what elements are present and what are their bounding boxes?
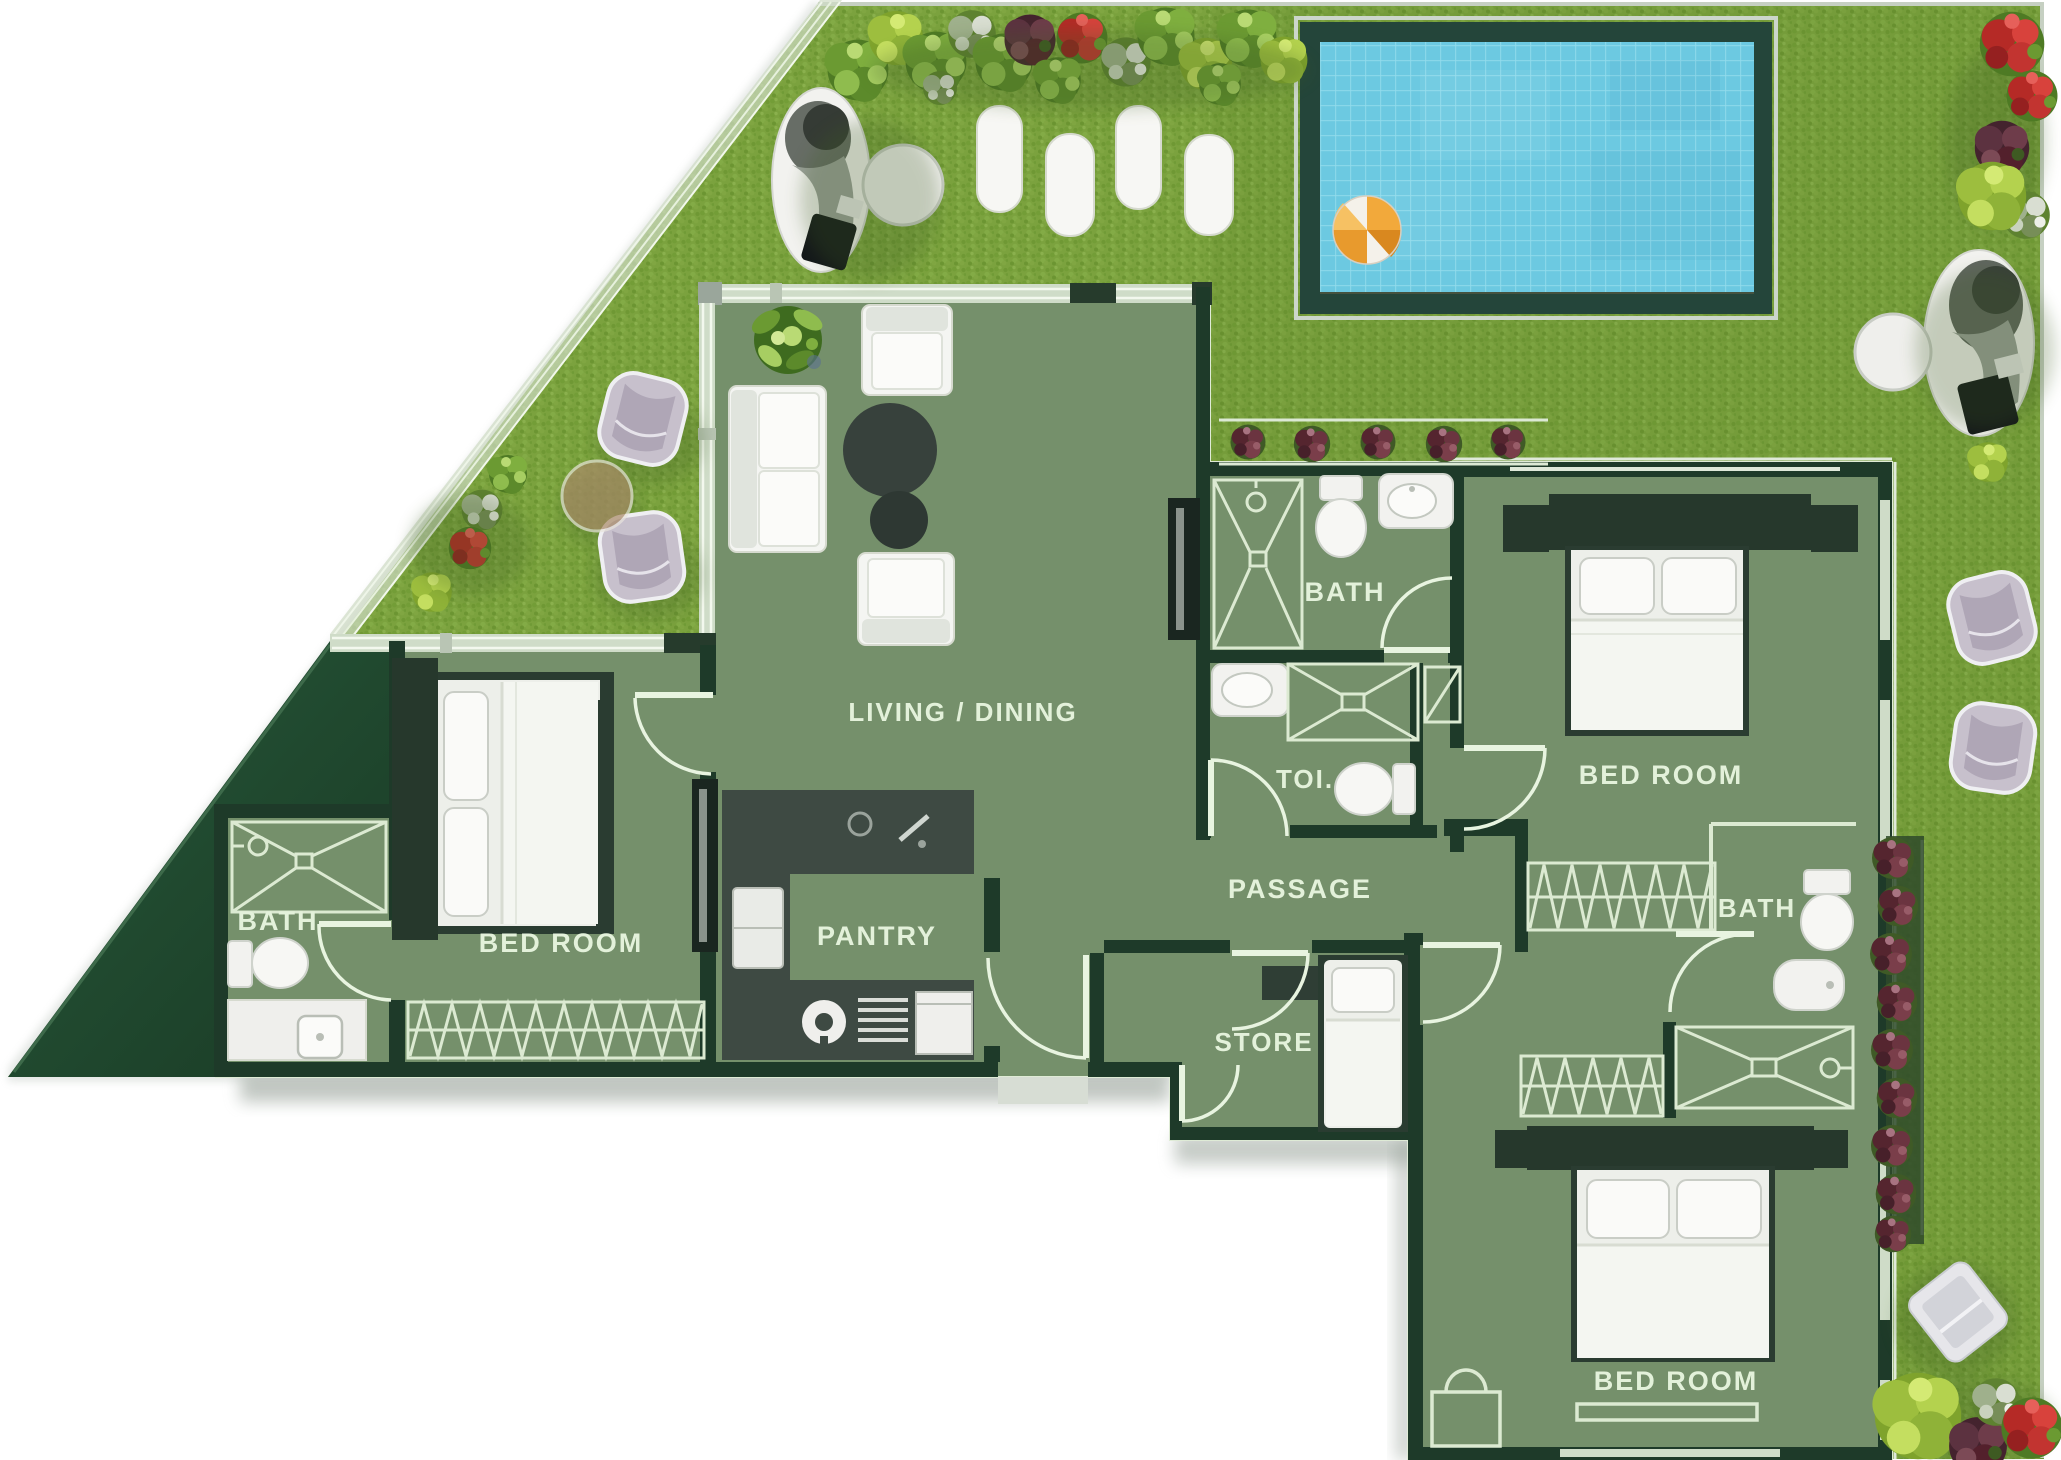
svg-text:PANTRY: PANTRY (817, 921, 937, 951)
svg-text:LIVING / DINING: LIVING / DINING (848, 697, 1077, 727)
svg-text:BED ROOM: BED ROOM (1594, 1366, 1759, 1396)
svg-text:BATH: BATH (238, 906, 319, 936)
svg-text:STORE: STORE (1214, 1027, 1313, 1057)
svg-text:PASSAGE: PASSAGE (1228, 874, 1372, 904)
svg-text:BED ROOM: BED ROOM (1579, 760, 1744, 790)
svg-text:BATH: BATH (1305, 577, 1386, 607)
svg-text:BATH: BATH (1718, 893, 1796, 923)
svg-text:BED ROOM: BED ROOM (479, 928, 644, 958)
svg-text:TOI.: TOI. (1276, 764, 1334, 794)
